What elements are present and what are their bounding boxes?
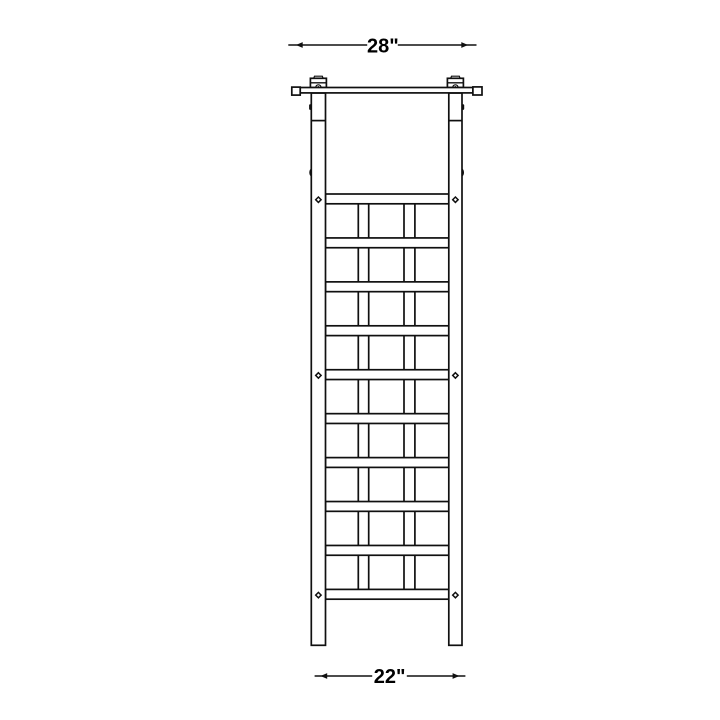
svg-text:22": 22" xyxy=(374,666,406,688)
svg-text:28": 28" xyxy=(367,36,399,58)
